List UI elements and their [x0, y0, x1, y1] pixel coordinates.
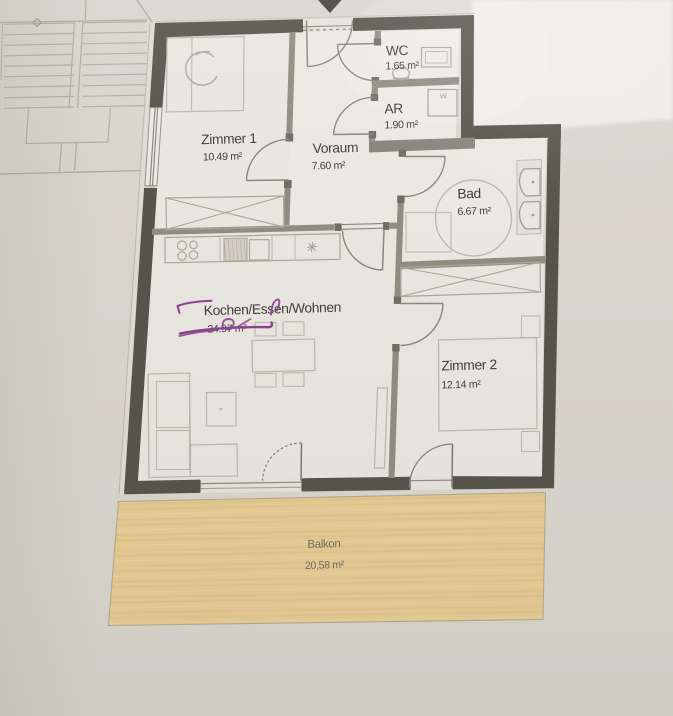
- svg-text:1.65 m²: 1.65 m²: [385, 60, 420, 73]
- svg-text:AR: AR: [384, 101, 403, 116]
- svg-text:Zimmer 2: Zimmer 2: [441, 357, 497, 373]
- svg-text:1.90 m²: 1.90 m²: [384, 119, 419, 132]
- svg-text:10.49 m²: 10.49 m²: [203, 150, 243, 163]
- svg-text:6.67 m²: 6.67 m²: [457, 205, 492, 218]
- svg-text:20,58 m²: 20,58 m²: [305, 559, 345, 572]
- svg-text:Balkon: Balkon: [307, 538, 340, 551]
- svg-text:WC: WC: [386, 43, 409, 59]
- svg-text:7.60 m²: 7.60 m²: [312, 160, 347, 173]
- svg-text:Voraum: Voraum: [312, 140, 358, 156]
- svg-text:Zimmer 1: Zimmer 1: [201, 131, 257, 147]
- svg-text:12.14 m²: 12.14 m²: [441, 378, 481, 391]
- svg-text:Bad: Bad: [457, 186, 481, 202]
